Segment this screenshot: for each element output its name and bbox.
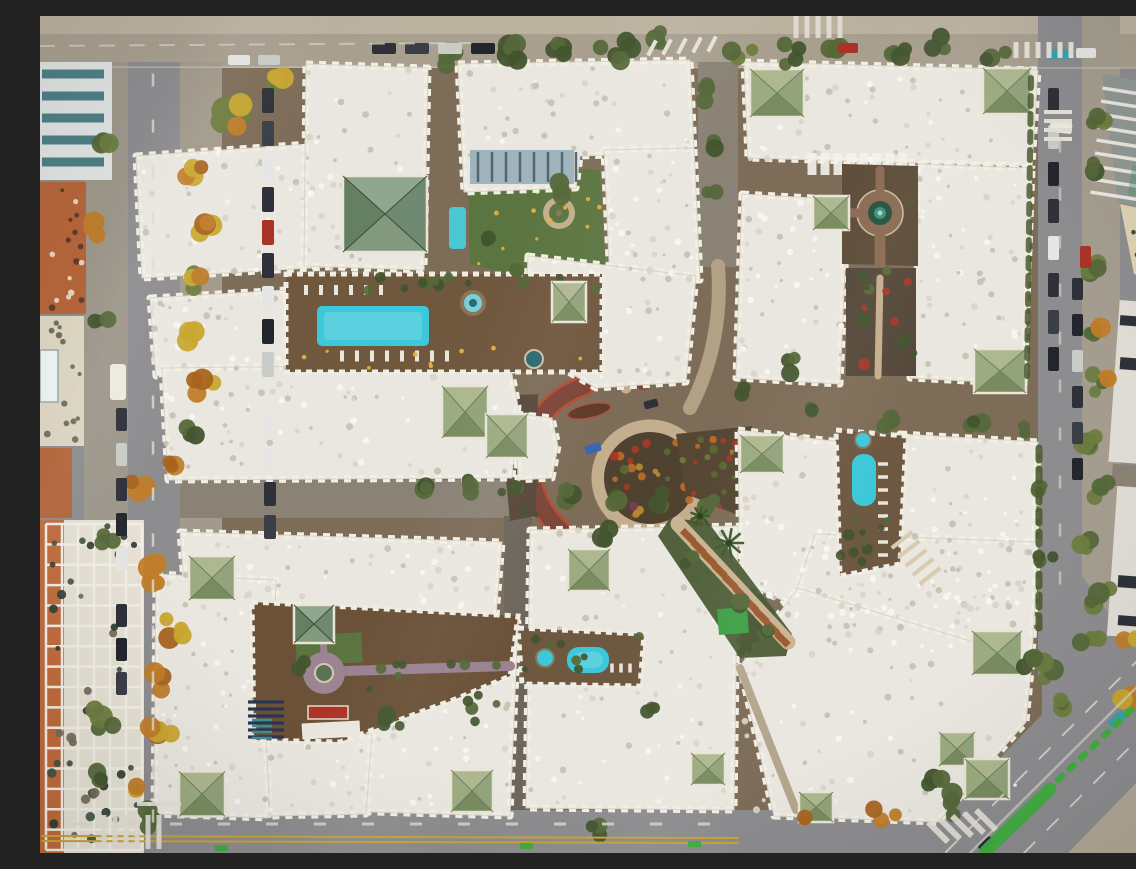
rooftex — [290, 804, 294, 808]
rooftex — [963, 511, 967, 515]
bottom-road-dashes — [266, 823, 278, 826]
crosswalk-top-right — [1069, 42, 1074, 58]
rooftex — [646, 371, 652, 377]
rooftex — [311, 779, 317, 785]
rooftex — [826, 88, 833, 95]
rooftex — [257, 580, 260, 583]
brick-building-windows — [67, 276, 71, 280]
rooftex — [419, 594, 422, 597]
pool-loungers — [334, 285, 338, 295]
rooftex — [434, 468, 441, 475]
rooftex — [983, 439, 987, 443]
rooftex — [255, 164, 258, 167]
rooftex — [881, 572, 887, 578]
rooftex — [319, 183, 325, 189]
rooftex — [888, 736, 893, 741]
rooftex — [804, 455, 808, 459]
rooftex — [437, 547, 444, 554]
rooftex — [813, 319, 819, 325]
rooftex — [698, 721, 703, 726]
rooftex — [190, 766, 194, 770]
modern-building-windows — [78, 594, 83, 599]
rooftex — [931, 497, 936, 502]
garden-ne-plants — [882, 266, 891, 275]
tree-canopy — [104, 717, 121, 734]
rooftex — [799, 119, 804, 124]
rooftex — [822, 541, 826, 545]
rooftex — [678, 684, 683, 689]
rooftex — [768, 516, 774, 522]
rooftex — [484, 586, 490, 592]
teal-awning — [252, 725, 272, 728]
rooftex — [269, 808, 273, 812]
rooftex — [967, 618, 971, 622]
rooftex — [244, 594, 248, 598]
rooftex — [927, 303, 932, 308]
modern-building-windows — [81, 795, 90, 804]
roundabout-flowers — [633, 510, 640, 517]
rooftex — [867, 751, 874, 758]
parked-cars-inner-row2 — [264, 515, 276, 539]
rooftex — [860, 592, 866, 598]
rooftex — [814, 305, 819, 310]
parked-cars-right-street — [1048, 347, 1059, 371]
rooftex — [224, 367, 228, 371]
rooftex — [1005, 581, 1011, 587]
rooftex — [405, 67, 412, 74]
rooftex — [748, 157, 752, 161]
glass-building-left-bands — [42, 92, 104, 101]
rooftex — [298, 545, 301, 548]
roundabout-flowers — [642, 439, 651, 448]
rooftex — [819, 268, 822, 271]
rooftex — [430, 374, 437, 381]
rooftex — [984, 497, 987, 500]
tree-canopy — [555, 46, 571, 62]
rooftex — [254, 267, 259, 272]
rooftex — [398, 166, 404, 172]
rooftex — [209, 307, 212, 310]
rooftex — [992, 602, 999, 609]
glass-building-left-bands — [42, 158, 104, 167]
white-car-top — [1076, 48, 1096, 58]
rooftex — [642, 367, 647, 372]
cream-tower-windows — [1131, 230, 1136, 235]
rooftex — [327, 173, 333, 179]
rooftex — [780, 279, 783, 282]
tree-canopy — [722, 42, 741, 61]
rooftex — [850, 710, 854, 714]
rooftex — [957, 611, 961, 615]
rooftex — [490, 87, 496, 93]
rooftex — [240, 246, 244, 250]
cream-building-windows — [49, 328, 55, 334]
rooftex — [216, 315, 222, 321]
rooftex — [551, 111, 556, 116]
rooftex — [268, 754, 275, 761]
tree-canopy — [378, 706, 397, 725]
building-southwest-bottombar — [266, 734, 372, 816]
brick-building-windows — [73, 199, 78, 204]
rooftex — [932, 244, 936, 248]
rooftex — [824, 712, 830, 718]
parked-cars-right-street — [1048, 310, 1059, 334]
rooftex — [672, 265, 676, 269]
parked-cars-right-curb — [1072, 350, 1083, 372]
parked-cars-inner-row — [262, 88, 274, 113]
rooftex — [959, 512, 963, 516]
courtyard-shrubs — [517, 282, 525, 290]
rooftex — [985, 735, 992, 742]
rooftex — [609, 207, 614, 212]
octagon-plaza-sw-garden — [315, 664, 333, 682]
rooftex — [936, 279, 940, 283]
rooftex — [920, 644, 924, 648]
rooftex — [182, 746, 188, 752]
rooftex — [744, 733, 749, 738]
roundabout-flowers — [612, 476, 618, 482]
rooftex — [343, 395, 347, 399]
tree-canopy — [199, 215, 215, 231]
tree-canopy — [227, 117, 246, 136]
rooftex — [595, 91, 600, 96]
rooftex — [225, 199, 229, 203]
rooftex — [203, 312, 210, 319]
rooftex — [922, 210, 925, 213]
courtyard-sw-shrubs — [474, 691, 483, 700]
rooftex — [435, 567, 442, 574]
solar-panels — [248, 714, 284, 717]
balcony-row-northeast — [808, 153, 817, 175]
glass-facade-mullions — [519, 152, 522, 182]
rooftex — [307, 182, 310, 185]
rooftex — [234, 366, 239, 371]
modern-building-windows — [90, 788, 100, 798]
crosswalk-bottom-left — [135, 815, 140, 849]
rooftex — [971, 303, 978, 310]
tree-canopy — [883, 410, 900, 427]
rooftex — [324, 575, 327, 578]
rooftex — [537, 545, 543, 551]
parked-cars-right-street — [1048, 236, 1059, 260]
rooftex — [168, 784, 172, 788]
garden-w-shrubs — [533, 512, 539, 518]
cars-top-road — [438, 43, 462, 54]
rooftex — [427, 794, 432, 799]
rooftex — [873, 118, 878, 123]
rooftex — [697, 683, 703, 689]
pool-east-loungers — [878, 553, 888, 557]
rooftex — [757, 742, 762, 747]
courtyard-sw-shrubs — [459, 659, 470, 670]
rooftex — [652, 252, 657, 257]
rooftex — [888, 573, 893, 578]
rooftex — [626, 307, 633, 314]
rooftex — [189, 414, 195, 420]
rooftex — [626, 742, 632, 748]
crosswalk-top-mid — [816, 16, 821, 38]
rooftex — [822, 593, 828, 599]
left-street-dashes — [152, 74, 155, 87]
parked-cars-inner-row — [262, 253, 274, 278]
rooftex — [690, 718, 694, 722]
lawn-lights — [597, 205, 602, 210]
garden-ne-flowers — [704, 454, 710, 460]
bottom-road-dashes — [554, 823, 566, 826]
rooftex — [990, 248, 995, 253]
spa-south — [536, 649, 554, 667]
crosswalk-bottom-left — [124, 815, 129, 849]
rooftex — [746, 216, 753, 223]
glass-building-left-bands — [42, 114, 104, 123]
rooftex — [974, 176, 979, 181]
rooftex — [151, 325, 158, 332]
right-street-dashes — [1059, 572, 1062, 585]
left-street-dashes — [152, 626, 155, 639]
right-street-dashes — [1059, 380, 1062, 393]
rooftex — [584, 687, 588, 691]
courtyard-east-shrubs — [857, 557, 866, 566]
tree-canopy — [737, 381, 750, 394]
rooftex — [960, 90, 965, 95]
rooftex — [689, 677, 692, 680]
garden-ne-flowers — [711, 471, 718, 478]
rooftex — [164, 338, 168, 342]
left-street-dashes — [152, 672, 155, 685]
rooftex — [519, 87, 523, 91]
rooftex — [1015, 600, 1020, 605]
warehouse-vent — [1118, 615, 1136, 627]
rooftex — [772, 774, 775, 777]
rooftex — [762, 798, 766, 802]
courtyard-lights — [429, 364, 433, 368]
rooftex — [246, 680, 249, 683]
garden-ne-plants — [882, 287, 890, 295]
rooftex — [541, 133, 547, 139]
top-road-upper — [40, 16, 1136, 34]
rooftex — [349, 254, 354, 259]
rooftex — [778, 524, 785, 531]
courtyard-sw-roof — [302, 720, 361, 739]
tree-canopy — [85, 701, 104, 720]
crosswalk-top-right — [1025, 42, 1030, 58]
rooftex — [849, 114, 852, 117]
rooftex — [279, 398, 285, 404]
rooftex — [615, 223, 619, 227]
rooftex — [891, 640, 897, 646]
garden-ne-flowers — [720, 438, 726, 444]
rooftex — [662, 83, 666, 87]
roundabout-flowers — [656, 472, 661, 477]
rooftex — [665, 371, 670, 376]
bike-marker — [520, 843, 533, 849]
rooftex — [944, 570, 947, 573]
rooftex — [633, 252, 638, 257]
rooftex — [839, 602, 845, 608]
rooftex — [773, 596, 777, 600]
rooftex — [647, 154, 652, 159]
modern-building-windows — [56, 729, 64, 737]
rooftex — [762, 515, 766, 519]
rooftex — [454, 587, 459, 592]
courtyard-shrubs — [591, 284, 600, 293]
rooftex — [925, 361, 931, 367]
rooftex — [928, 199, 932, 203]
tree-canopy — [272, 67, 294, 89]
bottom-road-dashes — [74, 823, 86, 826]
rooftex — [777, 234, 783, 240]
rooftex — [645, 300, 651, 306]
rooftex — [582, 615, 589, 622]
rooftex — [921, 314, 926, 319]
garden-ne-plants — [857, 271, 869, 283]
cream-building-windows — [44, 431, 51, 438]
courtyard-sw-shrubs — [470, 717, 480, 727]
teal-awning — [252, 731, 272, 734]
rooftex — [369, 563, 373, 567]
rooftex — [973, 595, 976, 598]
tree-canopy — [687, 550, 700, 563]
rooftex — [333, 158, 337, 162]
rooftex — [505, 702, 511, 708]
rooftex — [319, 213, 325, 219]
rooftex — [751, 494, 757, 500]
pool-loungers — [349, 285, 353, 295]
rooftex — [954, 551, 958, 555]
rooftex — [330, 182, 336, 188]
crosswalk-top-right — [1047, 42, 1052, 58]
rooftex — [949, 502, 952, 505]
rooftex — [962, 322, 966, 326]
rooftex — [988, 235, 993, 240]
tree-canopy — [509, 263, 523, 277]
rooftex — [904, 123, 910, 129]
pool-loungers — [340, 351, 344, 362]
parked-cars-inner-row — [262, 220, 274, 245]
rooftex — [314, 140, 319, 145]
cars-top-road — [405, 43, 429, 54]
bottom-road-dashes — [650, 823, 662, 826]
rooftex — [239, 442, 244, 447]
rooftex — [258, 748, 262, 752]
brick-building-windows — [60, 188, 64, 192]
rooftex — [863, 720, 867, 724]
rooftex — [656, 307, 659, 310]
roundabout-flowers — [620, 465, 629, 474]
rooftex — [234, 327, 238, 331]
rooftex — [794, 281, 801, 288]
rooftex — [311, 226, 316, 231]
crosswalk-top-mid — [838, 16, 843, 38]
rooftex — [223, 423, 228, 428]
parked-cars-right-street — [1048, 273, 1059, 297]
tree-canopy — [734, 593, 750, 609]
rooftex — [912, 758, 916, 762]
rooftex — [528, 787, 533, 792]
rooftex — [227, 430, 230, 433]
rooftex — [277, 753, 283, 759]
tree-canopy — [184, 321, 205, 342]
rooftex — [989, 139, 993, 143]
rooftex — [305, 744, 311, 750]
rooftex — [665, 225, 671, 231]
tree-canopy — [100, 311, 117, 328]
roundabout-flowers — [627, 458, 633, 464]
rooftex — [337, 384, 344, 391]
rooftex — [949, 520, 956, 527]
rooftex — [843, 623, 849, 629]
rooftex — [839, 353, 843, 357]
rooftex — [471, 543, 474, 546]
rooftex — [350, 417, 357, 424]
modern-building-windows — [67, 760, 73, 766]
garden-ne-flowers — [719, 462, 727, 470]
rooftex — [251, 205, 256, 210]
rooftex — [224, 704, 228, 708]
garden-ne-flowers — [721, 489, 727, 495]
rooftex — [744, 505, 750, 511]
rooftex — [376, 737, 380, 741]
parked-cars-inner-row — [262, 286, 274, 311]
courtyard-shrubs — [556, 274, 564, 282]
tree-canopy — [777, 37, 793, 53]
rooftex — [932, 584, 936, 588]
rooftex — [231, 268, 238, 275]
rooftex — [777, 125, 783, 131]
rooftex — [963, 494, 969, 500]
parked-cars-inner-row2 — [264, 449, 276, 473]
rooftex — [912, 447, 916, 451]
rooftex — [405, 554, 410, 559]
rooftex — [657, 335, 663, 341]
rooftex — [418, 469, 424, 475]
rooftex — [483, 724, 488, 729]
bottom-road-dashes — [458, 823, 470, 826]
tree-canopy — [140, 717, 161, 738]
pool-east-loungers — [878, 540, 888, 544]
rooftex — [141, 169, 146, 174]
rooftex — [812, 249, 816, 253]
glass-building-left-bands — [42, 70, 104, 79]
rooftex — [463, 736, 466, 739]
glass-facade-mullions — [547, 152, 550, 182]
rooftex — [342, 128, 347, 133]
rooftex — [866, 81, 873, 88]
right-street-dashes — [1059, 476, 1062, 489]
garden-ne-flowers — [691, 491, 697, 497]
pool-east — [852, 454, 876, 506]
rooftex — [964, 625, 968, 629]
cream-building-windows — [60, 339, 66, 345]
rooftex — [188, 299, 191, 302]
rooftex — [165, 233, 170, 238]
tree-canopy — [708, 184, 723, 199]
rooftex — [306, 157, 309, 160]
tree-canopy — [932, 770, 950, 788]
water-feature — [449, 207, 466, 249]
rooftex — [186, 735, 190, 739]
rooftex — [213, 724, 218, 729]
garden-ne-plants — [904, 278, 912, 286]
rooftex — [467, 70, 474, 77]
tree-canopy — [805, 403, 819, 417]
tree-canopy — [420, 481, 433, 494]
rooftex — [618, 230, 624, 236]
parked-cars-right-street — [1048, 88, 1059, 112]
bottom-road-dashes — [218, 823, 230, 826]
parked-cars-left-street — [116, 478, 127, 501]
tree-canopy — [99, 134, 119, 154]
